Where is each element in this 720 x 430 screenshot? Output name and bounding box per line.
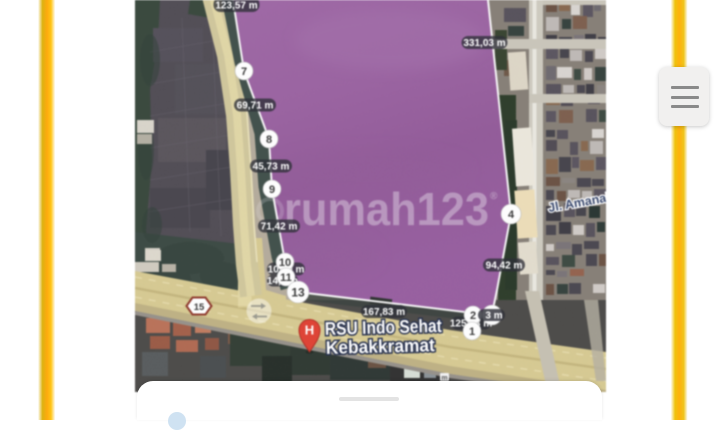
- svg-text:®: ®: [490, 191, 498, 202]
- svg-text:H: H: [305, 323, 314, 338]
- svg-text:1: 1: [469, 326, 475, 338]
- svg-text:rumah123: rumah123: [284, 183, 489, 235]
- svg-text:2: 2: [470, 310, 476, 322]
- svg-text:8: 8: [266, 134, 272, 146]
- svg-text:45,73 m: 45,73 m: [253, 162, 290, 173]
- svg-text:71,42 m: 71,42 m: [261, 222, 298, 233]
- svg-text:13: 13: [291, 286, 305, 300]
- svg-text:94,42 m: 94,42 m: [486, 261, 523, 272]
- svg-text:Kebakkramat: Kebakkramat: [326, 334, 436, 358]
- svg-text:10: 10: [279, 257, 291, 269]
- svg-text:4: 4: [508, 209, 515, 221]
- svg-text:3 m: 3 m: [485, 311, 502, 322]
- svg-text:9: 9: [269, 184, 275, 196]
- svg-text:15: 15: [194, 302, 205, 313]
- svg-text:11: 11: [280, 272, 292, 284]
- svg-text:69,71 m: 69,71 m: [237, 101, 274, 112]
- svg-text:331,03 m: 331,03 m: [463, 38, 505, 49]
- svg-text:7: 7: [241, 66, 247, 78]
- svg-text:123,57 m: 123,57 m: [215, 1, 257, 12]
